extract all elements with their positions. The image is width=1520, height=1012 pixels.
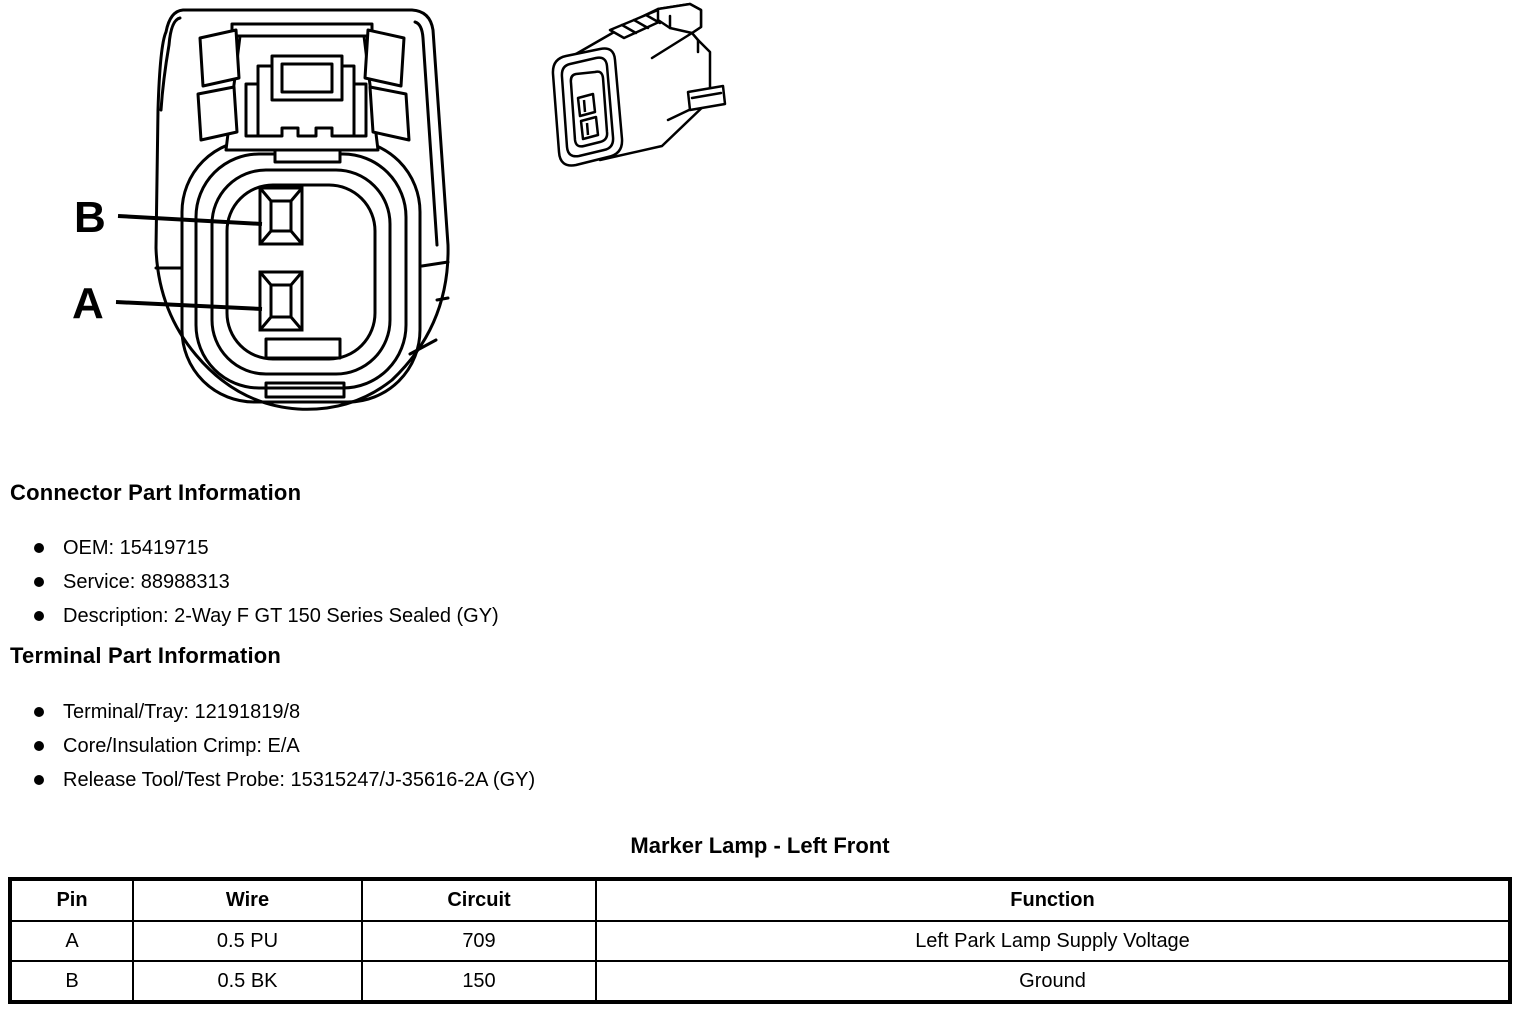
list-item: Release Tool/Test Probe: 15315247/J-3561… [34, 763, 535, 797]
connector-part-information-list: OEM: 15419715 Service: 88988313 Descript… [34, 531, 499, 633]
list-item: Description: 2-Way F GT 150 Series Seale… [34, 599, 499, 633]
bullet-icon [34, 577, 44, 587]
connector-latch-assembly [198, 24, 409, 162]
pin-label-b: B [74, 193, 106, 242]
column-header-circuit: Circuit [362, 879, 596, 921]
cell-function: Ground [596, 961, 1510, 1002]
cell-pin: B [10, 961, 133, 1002]
terminal-cavity-b [260, 188, 302, 244]
list-item-text: Terminal/Tray: 12191819/8 [63, 701, 300, 724]
list-item-text: Description: 2-Way F GT 150 Series Seale… [63, 605, 499, 628]
list-item-text: Release Tool/Test Probe: 15315247/J-3561… [63, 769, 535, 792]
terminal-part-information-heading: Terminal Part Information [10, 643, 281, 669]
list-item: Service: 88988313 [34, 565, 499, 599]
table-row: A 0.5 PU 709 Left Park Lamp Supply Volta… [10, 921, 1510, 961]
isometric-mating-face [553, 48, 622, 165]
column-header-function: Function [596, 879, 1510, 921]
list-item-text: Core/Insulation Crimp: E/A [63, 735, 300, 758]
table-header-row: Pin Wire Circuit Function [10, 879, 1510, 921]
column-header-pin: Pin [10, 879, 133, 921]
list-item: OEM: 15419715 [34, 531, 499, 565]
terminal-part-information-list: Terminal/Tray: 12191819/8 Core/Insulatio… [34, 695, 535, 797]
pinout-table: Pin Wire Circuit Function A 0.5 PU 709 L… [8, 877, 1512, 1004]
cell-circuit: 709 [362, 921, 596, 961]
column-header-wire: Wire [133, 879, 362, 921]
document-page: B A [0, 0, 1520, 1012]
list-item: Core/Insulation Crimp: E/A [34, 729, 535, 763]
cell-function: Left Park Lamp Supply Voltage [596, 921, 1510, 961]
pin-label-a: A [72, 279, 104, 328]
cell-circuit: 150 [362, 961, 596, 1002]
leader-line-b [118, 216, 262, 224]
connector-isometric-view-drawing [540, 0, 730, 178]
bullet-icon [34, 707, 44, 717]
cell-wire: 0.5 PU [133, 921, 362, 961]
leader-line-a [116, 302, 262, 309]
cell-wire: 0.5 BK [133, 961, 362, 1002]
bullet-icon [34, 543, 44, 553]
bullet-icon [34, 741, 44, 751]
pinout-table-title: Marker Lamp - Left Front [0, 833, 1520, 859]
list-item: Terminal/Tray: 12191819/8 [34, 695, 535, 729]
list-item-text: Service: 88988313 [63, 571, 230, 594]
bullet-icon [34, 775, 44, 785]
cell-pin: A [10, 921, 133, 961]
terminal-cavity-a [260, 272, 302, 330]
list-item-text: OEM: 15419715 [63, 537, 209, 560]
table-row: B 0.5 BK 150 Ground [10, 961, 1510, 1002]
bullet-icon [34, 611, 44, 621]
connector-front-view-drawing: B A [60, 0, 460, 420]
connector-part-information-heading: Connector Part Information [10, 480, 301, 506]
